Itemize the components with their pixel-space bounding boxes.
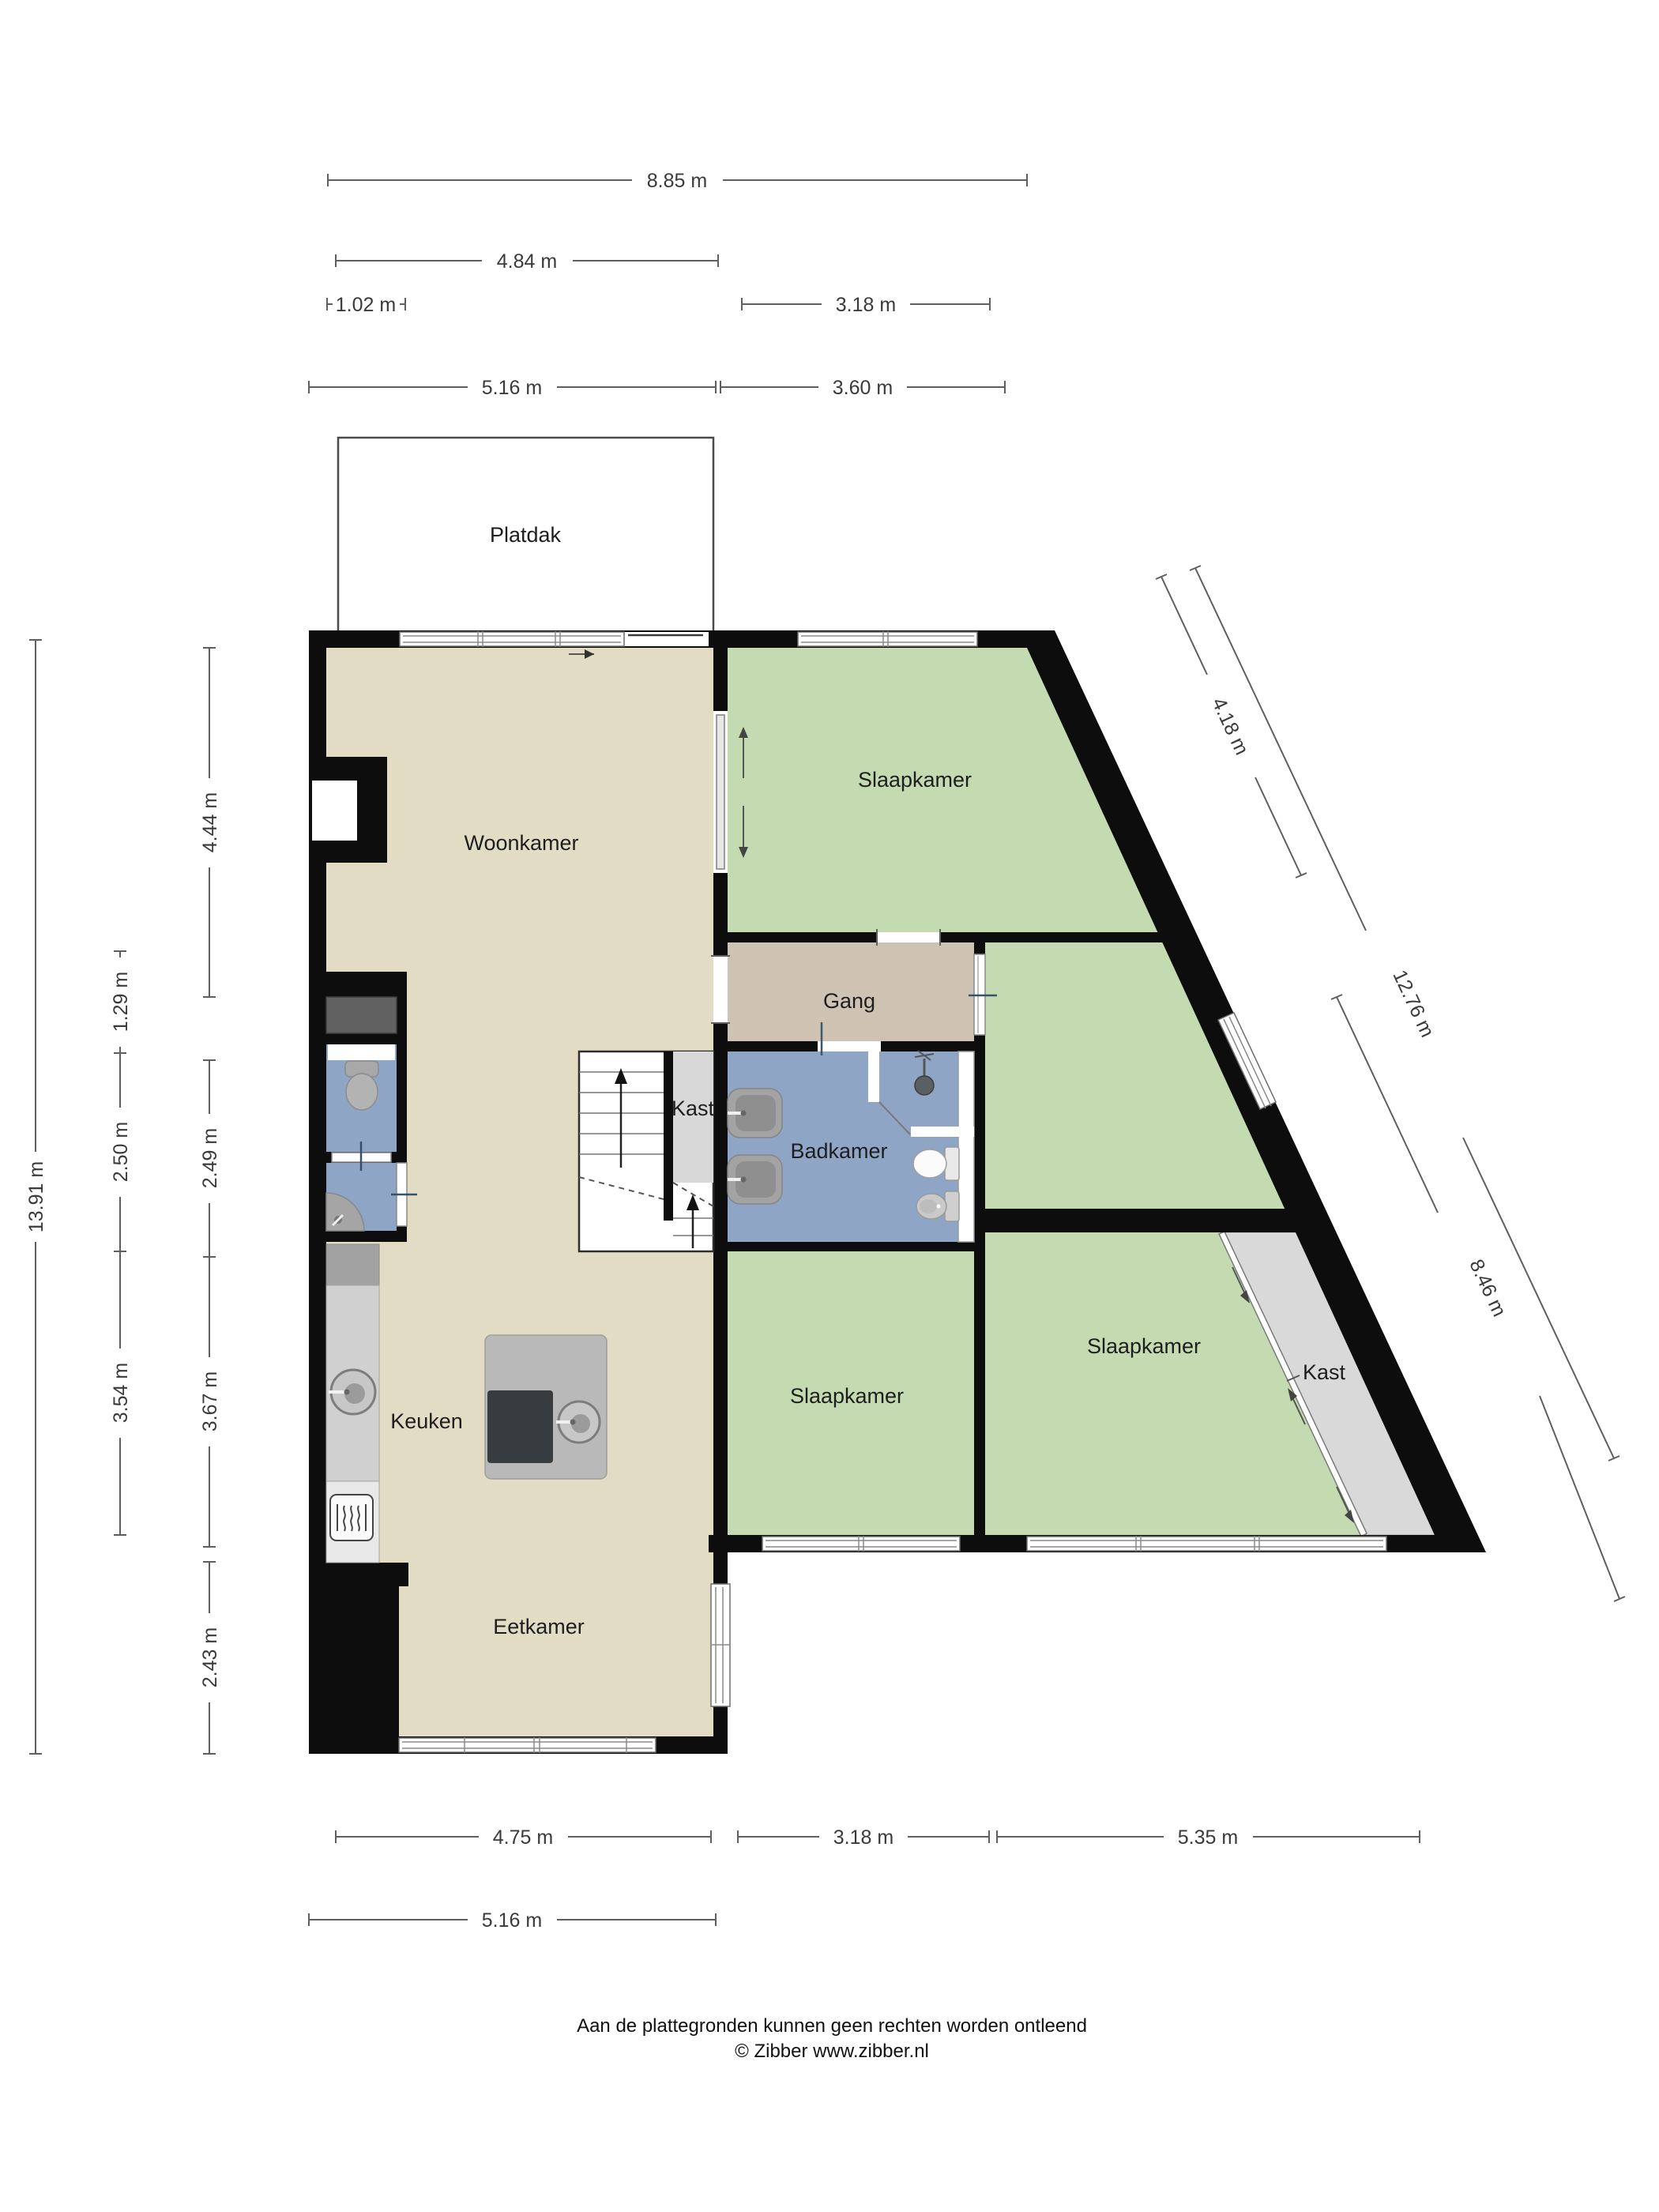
sliding-door [717,715,724,869]
svg-text:8.85 m: 8.85 m [647,170,707,192]
washbasin2-icon [728,1155,782,1204]
dim-top-platdak: 4.84 m [336,250,718,273]
svg-text:12.76 m: 12.76 m [1388,967,1439,1041]
label-gang: Gang [823,989,875,1013]
svg-text:4.18 m: 4.18 m [1207,694,1253,758]
svg-text:5.16 m: 5.16 m [482,377,542,399]
svg-text:3.18 m: 3.18 m [833,1826,893,1849]
svg-text:3.67 m: 3.67 m [199,1371,221,1431]
label-slaapkamer-mid: Slaapkamer [790,1384,904,1408]
dim-onder-318: 3.18 m [738,1826,989,1849]
wc-icon [345,1061,378,1110]
footer-disclaimer: Aan de plattegronden kunnen geen rechten… [577,2015,1087,2037]
dim-onder-516: 5.16 m [309,1909,716,1932]
dim-links-249: 2.49 m [199,1060,221,1257]
label-keuken: Keuken [390,1409,463,1433]
label-badkamer: Badkamer [790,1139,887,1163]
label-woonkamer: Woonkamer [464,831,578,855]
footer: Aan de plattegronden kunnen geen rechten… [577,2015,1087,2062]
svg-text:8.46 m: 8.46 m [1465,1256,1510,1320]
toilet-icon [913,1147,959,1180]
dim-top-total: 8.85 m [328,170,1027,192]
footer-copyright: © Zibber www.zibber.nl [735,2041,929,2062]
svg-text:3.54 m: 3.54 m [110,1363,132,1423]
svg-text:4.75 m: 4.75 m [493,1826,553,1849]
label-kast-rechts: Kast [1303,1360,1346,1384]
cooktop-icon [487,1390,553,1463]
svg-text:3.60 m: 3.60 m [833,377,893,399]
label-slaapkamer-top: Slaapkamer [858,768,972,792]
dim-links-243: 2.43 m [199,1562,221,1754]
floorplan-page: Platdak Woonkamer Slaapkamer Gang Kast B… [0,0,1659,2212]
counter-top-segment [326,1244,379,1285]
label-eetkamer: Eetkamer [493,1615,585,1638]
dim-rij2-links: 5.16 m [309,377,716,399]
staircase [579,1051,713,1251]
shaft [326,997,397,1033]
svg-text:3.18 m: 3.18 m [836,294,896,316]
floorplan-drawing: Platdak Woonkamer Slaapkamer Gang Kast B… [0,0,1659,2212]
svg-text:2.50 m: 2.50 m [110,1122,132,1182]
svg-text:1.29 m: 1.29 m [110,972,132,1032]
svg-text:1.02 m: 1.02 m [336,294,396,316]
label-slaapkamer-rechts: Slaapkamer [1087,1334,1201,1358]
dim-onder-475: 4.75 m [336,1826,711,1849]
svg-text:2.43 m: 2.43 m [199,1627,221,1687]
kitchen-island [485,1335,607,1479]
dim-top-rechts: 3.18 m [742,294,990,316]
dimensions-left: 13.91 m 1.29 m 2.50 m 3.54 m 4.44 m 2.49… [25,640,221,1754]
dim-rij2-rechts: 3.60 m [720,377,1005,399]
room-floors [326,648,1443,1736]
dim-links-367: 3.67 m [199,1257,221,1547]
dim-links-129: 1.29 m [110,951,132,1053]
dim-diag-418: 4.18 m [1156,574,1307,878]
svg-text:4.44 m: 4.44 m [199,792,221,852]
dim-onder-535: 5.35 m [997,1826,1420,1849]
washbasin-icon [728,1089,782,1138]
svg-text:5.35 m: 5.35 m [1178,1826,1238,1849]
svg-text:5.16 m: 5.16 m [482,1909,542,1932]
keuken-wall-stub [326,1563,408,1586]
dim-links-444: 4.44 m [199,648,221,997]
svg-text:4.84 m: 4.84 m [497,250,557,273]
dim-links-totaal: 13.91 m [25,640,47,1754]
dimensions-bottom: 4.75 m 3.18 m 5.35 m 5.16 m [309,1826,1420,1932]
dim-top-klein: 1.02 m [327,294,405,316]
label-kast-trap: Kast [671,1097,715,1120]
svg-text:2.49 m: 2.49 m [199,1128,221,1188]
dimensions-top: 8.85 m 4.84 m 1.02 m 3.18 m 5.16 m 3.60 … [309,170,1027,399]
label-platdak: Platdak [490,523,562,547]
dim-links-354: 3.54 m [110,1251,132,1535]
svg-text:13.91 m: 13.91 m [25,1161,47,1232]
dim-links-250: 2.50 m [110,1053,132,1251]
bidet-icon [916,1191,959,1221]
oven-icon [330,1495,373,1540]
bathroom-duct [958,1051,974,1242]
